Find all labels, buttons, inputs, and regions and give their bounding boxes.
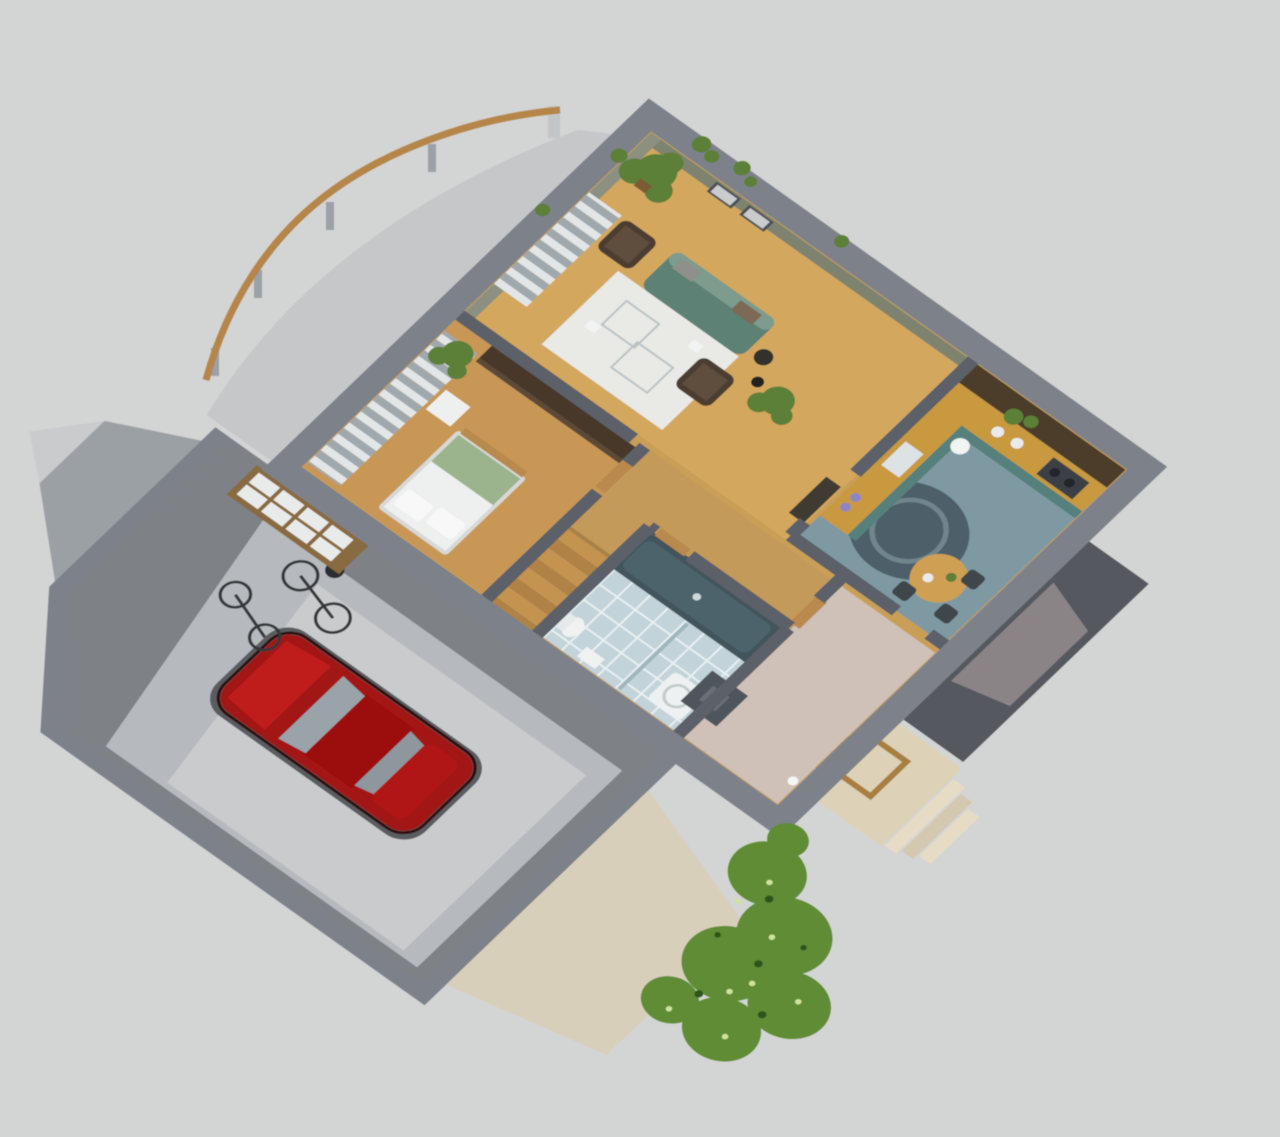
railing-post <box>428 144 436 172</box>
house-render <box>0 0 1280 1137</box>
railing-post <box>326 202 334 230</box>
screenshot-stage <box>0 0 1280 1137</box>
